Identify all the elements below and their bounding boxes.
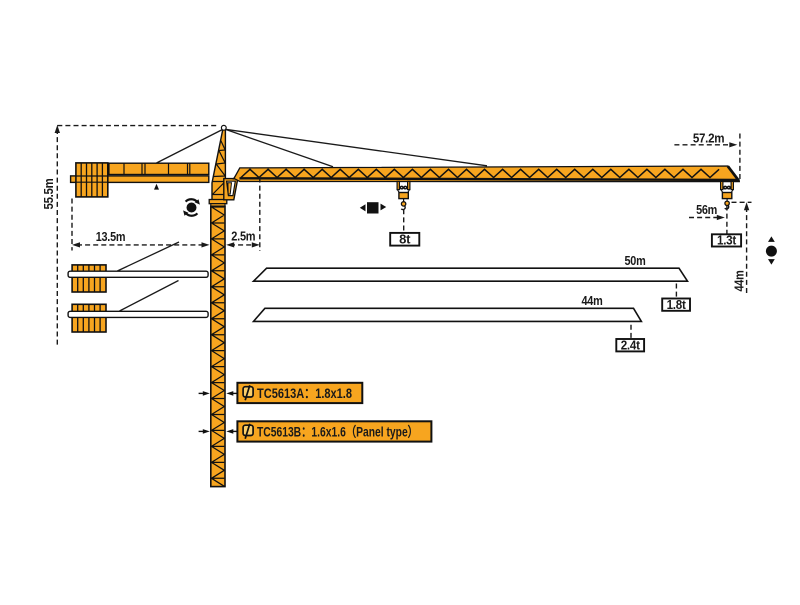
svg-text:44m: 44m — [732, 271, 747, 292]
svg-text:44m: 44m — [582, 293, 603, 308]
svg-text:50m: 50m — [625, 253, 646, 268]
svg-text:8t: 8t — [399, 231, 411, 246]
svg-text:1.3t: 1.3t — [717, 233, 737, 248]
svg-text:57.2m: 57.2m — [693, 131, 725, 146]
svg-text:56m: 56m — [696, 202, 717, 217]
svg-text:55.5m: 55.5m — [41, 179, 56, 210]
svg-text:13.5m: 13.5m — [96, 229, 126, 244]
svg-text:2.4t: 2.4t — [621, 337, 641, 352]
svg-text:TC5613A：1.8x1.8: TC5613A：1.8x1.8 — [257, 386, 352, 401]
svg-text:1.8t: 1.8t — [667, 297, 687, 312]
svg-text:2.5m: 2.5m — [231, 228, 255, 243]
svg-text:TC5613B：1.6x1.6（Panel type）: TC5613B：1.6x1.6（Panel type） — [257, 425, 418, 440]
